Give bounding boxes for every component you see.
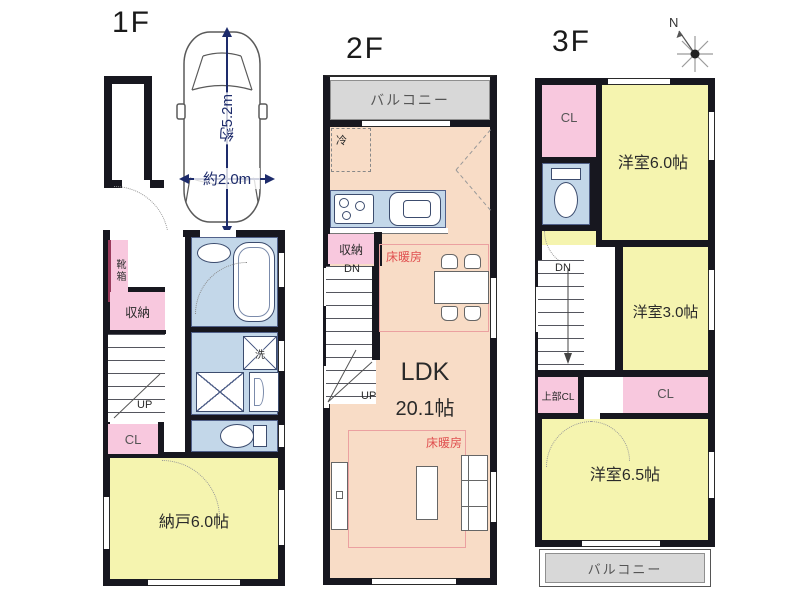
- closet-3f-mid-label: CL: [623, 386, 708, 401]
- ldk-size-label: 20.1帖: [378, 392, 472, 421]
- floorplan-canvas: 1F 約5.2m 約2.0m: [0, 0, 800, 600]
- water-heater: [196, 372, 244, 412]
- floor-heating-label-living: 床暖房: [352, 434, 462, 451]
- upper-closet-label: 上部CL: [536, 388, 580, 403]
- window: [490, 278, 497, 338]
- depth-dimension-label: 約5.2m: [217, 92, 238, 144]
- up-label-2f: UP: [361, 390, 376, 402]
- wall: [615, 247, 623, 370]
- balcony-2f: バルコニー: [330, 80, 490, 120]
- depth-arrow-top: [222, 27, 232, 37]
- width-arrow-right: [265, 174, 275, 184]
- wall: [590, 163, 596, 225]
- fridge-label: 冷: [336, 132, 347, 148]
- wall: [538, 370, 710, 377]
- toilet-tank-3f: [551, 168, 581, 180]
- washing-machine: 洗: [243, 336, 277, 370]
- wall: [158, 422, 164, 452]
- toilet-3f: [554, 182, 578, 218]
- window: [148, 579, 240, 586]
- up-label-1f: UP: [137, 399, 152, 411]
- wall: [596, 240, 708, 247]
- stove: [334, 194, 374, 224]
- floor-heating-label-dining: 床暖房: [386, 248, 422, 265]
- floor2-title: 2F: [346, 32, 385, 66]
- dining-chair: [464, 254, 481, 269]
- dn-label-2f: DN: [344, 263, 360, 275]
- kitchen-sink: [389, 192, 441, 226]
- width-arrow-left: [179, 174, 189, 184]
- window: [278, 490, 285, 545]
- balcony-3f: バルコニー: [545, 553, 705, 583]
- dining-chair: [441, 254, 458, 269]
- washbasin: [197, 243, 231, 263]
- dining-chair: [441, 306, 458, 321]
- storage-1f: 収納: [110, 292, 165, 330]
- room-3-0-label: 洋室3.0帖: [623, 301, 708, 322]
- tv-stand: [331, 462, 348, 530]
- window: [708, 112, 715, 160]
- window: [708, 270, 715, 330]
- wall: [578, 377, 584, 413]
- storeroom-label: 納戸6.0帖: [124, 508, 264, 532]
- toilet-1f: [220, 424, 254, 448]
- closet-3f-top-label: CL: [542, 110, 596, 125]
- floor1-title: 1F: [112, 6, 151, 40]
- compass-icon: N: [666, 14, 724, 76]
- window: [608, 78, 670, 85]
- porch-walls: [104, 76, 152, 188]
- storage-2f: 収納: [328, 234, 374, 264]
- floor1-entrance-opening: [200, 230, 236, 237]
- room-6-5-label: 洋室6.5帖: [565, 461, 685, 485]
- room-6-0-label: 洋室6.0帖: [594, 149, 712, 173]
- dining-chair: [464, 306, 481, 321]
- floor3-title: 3F: [552, 25, 591, 59]
- coffee-table: [416, 466, 438, 520]
- ldk-label: LDK: [383, 358, 467, 387]
- staircase-3f-arrow: [538, 260, 584, 372]
- dining-table: [434, 271, 489, 304]
- window: [490, 472, 497, 522]
- toilet-tank-1f: [253, 425, 267, 447]
- window: [582, 540, 660, 547]
- window: [103, 497, 110, 549]
- dn-label-3f: DN: [555, 262, 571, 274]
- compass-north-label: N: [669, 15, 678, 30]
- width-dimension-label: 約2.0m: [194, 168, 260, 189]
- sofa: [461, 455, 488, 531]
- window: [278, 425, 285, 447]
- window: [362, 120, 450, 127]
- floor1-entry-open-top: [110, 230, 183, 237]
- vanity-unit: [249, 372, 279, 412]
- closet-1f: CL: [108, 424, 158, 454]
- window: [278, 341, 285, 371]
- window: [372, 578, 456, 585]
- dashed-diagonal-marks: [455, 126, 493, 214]
- window: [278, 253, 285, 287]
- window: [708, 452, 715, 498]
